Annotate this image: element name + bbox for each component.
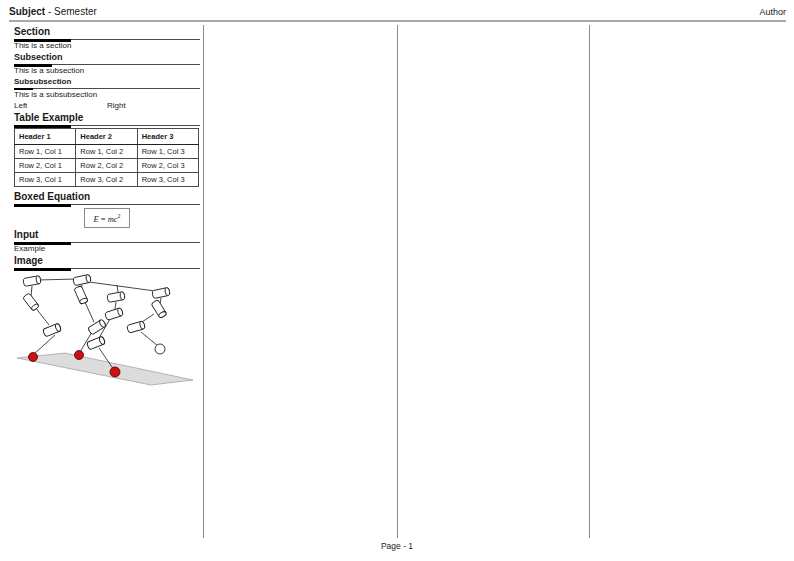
- header-subject: Subject: [9, 6, 45, 17]
- header-author: Author: [759, 7, 786, 17]
- table-cell: Row 1, Col 1: [15, 145, 76, 159]
- table-cell: Row 1, Col 3: [137, 145, 198, 159]
- section-heading: Section: [14, 26, 200, 40]
- image-section-heading: Image: [14, 255, 200, 269]
- subsection-heading: Subsection: [14, 52, 200, 65]
- ground-plane: [17, 353, 193, 385]
- table-cell: Row 3, Col 2: [76, 173, 137, 187]
- two-column-row: Left Right: [14, 101, 200, 111]
- header-semester: Semester: [54, 6, 97, 17]
- equation-rhs: mc: [108, 214, 118, 224]
- table-cell: Row 2, Col 3: [137, 159, 198, 173]
- joint-cylinders: [22, 274, 170, 350]
- subsection-body: This is a subsection: [14, 66, 200, 76]
- boxed-equation-heading: Boxed Equation: [14, 191, 200, 205]
- boxed-equation-title: Boxed Equation: [14, 191, 90, 202]
- right-column-text: Right: [107, 101, 200, 111]
- table-row: Row 2, Col 1 Row 2, Col 2 Row 2, Col 3: [15, 159, 199, 173]
- table-section-heading: Table Example: [14, 112, 200, 126]
- subsection-rule-bar: [14, 64, 52, 67]
- content-column: Section This is a section Subsection Thi…: [14, 26, 200, 387]
- table-cell: Row 3, Col 1: [15, 173, 76, 187]
- column-divider: [203, 25, 204, 538]
- free-foot-marker: [155, 344, 165, 354]
- input-section-title: Input: [14, 229, 38, 240]
- section-title: Section: [14, 26, 50, 37]
- table-header-row: Header 1 Header 2 Header 3: [15, 129, 199, 145]
- document-page: Subject - Semester Author Section This i…: [0, 0, 794, 561]
- foot-contact-marker: [75, 350, 84, 359]
- page-header: Subject - Semester Author: [9, 6, 786, 18]
- table-header-cell: Header 1: [15, 129, 76, 145]
- table-header-cell: Header 2: [76, 129, 137, 145]
- boxed-equation-rule-bar: [14, 204, 71, 207]
- equation-exponent: 2: [118, 213, 121, 219]
- table-cell: Row 2, Col 1: [15, 159, 76, 173]
- table-row: Row 3, Col 1 Row 3, Col 2 Row 3, Col 3: [15, 173, 199, 187]
- subsubsection-rule-bar: [14, 88, 33, 90]
- section-body: This is a section: [14, 41, 200, 51]
- header-separator: -: [48, 6, 51, 17]
- section-rule-bar: [14, 39, 71, 42]
- page-footer: Page - 1: [0, 541, 794, 551]
- subsubsection-heading: Subsubsection: [14, 77, 200, 89]
- input-section-heading: Input: [14, 229, 200, 243]
- equation-lhs: E: [93, 214, 98, 224]
- equation-relation: =: [101, 214, 106, 224]
- table-row: Row 1, Col 1 Row 1, Col 2 Row 1, Col 3: [15, 145, 199, 159]
- table-section-title: Table Example: [14, 112, 83, 123]
- foot-contact-marker: [110, 367, 120, 377]
- column-divider: [397, 25, 398, 538]
- left-column-text: Left: [14, 101, 107, 111]
- header-rule: [9, 20, 786, 22]
- input-body: Example: [14, 244, 200, 254]
- robot-linkage-figure: [8, 271, 203, 387]
- column-divider: [589, 25, 590, 538]
- image-section-title: Image: [14, 255, 43, 266]
- subsubsection-title: Subsubsection: [14, 77, 71, 86]
- table-header-cell: Header 3: [137, 129, 198, 145]
- foot-contact-marker: [29, 352, 38, 361]
- image-section-rule-bar: [14, 268, 71, 271]
- table-cell: Row 1, Col 2: [76, 145, 137, 159]
- input-section-rule-bar: [14, 242, 71, 245]
- table-cell: Row 3, Col 3: [137, 173, 198, 187]
- equation-box: E = mc2: [84, 208, 130, 228]
- example-table: Header 1 Header 2 Header 3 Row 1, Col 1 …: [14, 128, 199, 187]
- table-section-rule-bar: [14, 125, 71, 128]
- subsection-title: Subsection: [14, 52, 63, 62]
- subsubsection-body: This is a subsubsection: [14, 90, 200, 100]
- table-cell: Row 2, Col 2: [76, 159, 137, 173]
